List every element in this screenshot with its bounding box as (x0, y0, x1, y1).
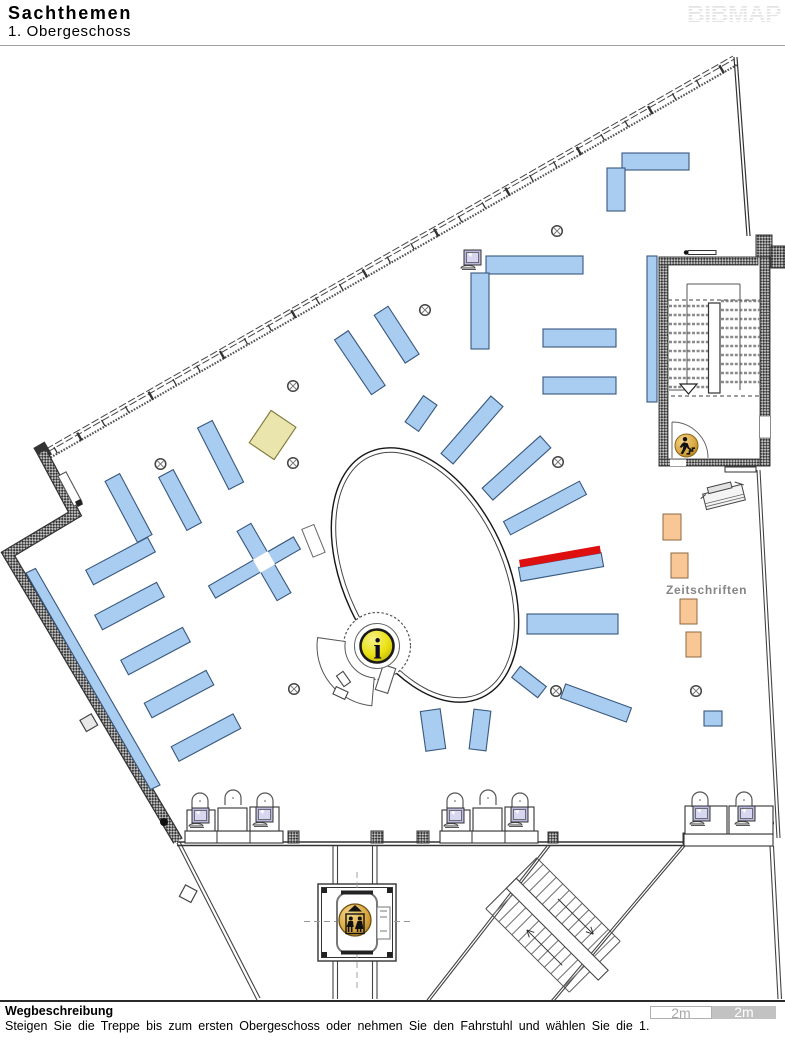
svg-text:i: i (373, 633, 381, 666)
svg-text:BIBMAP: BIBMAP (687, 1, 781, 28)
